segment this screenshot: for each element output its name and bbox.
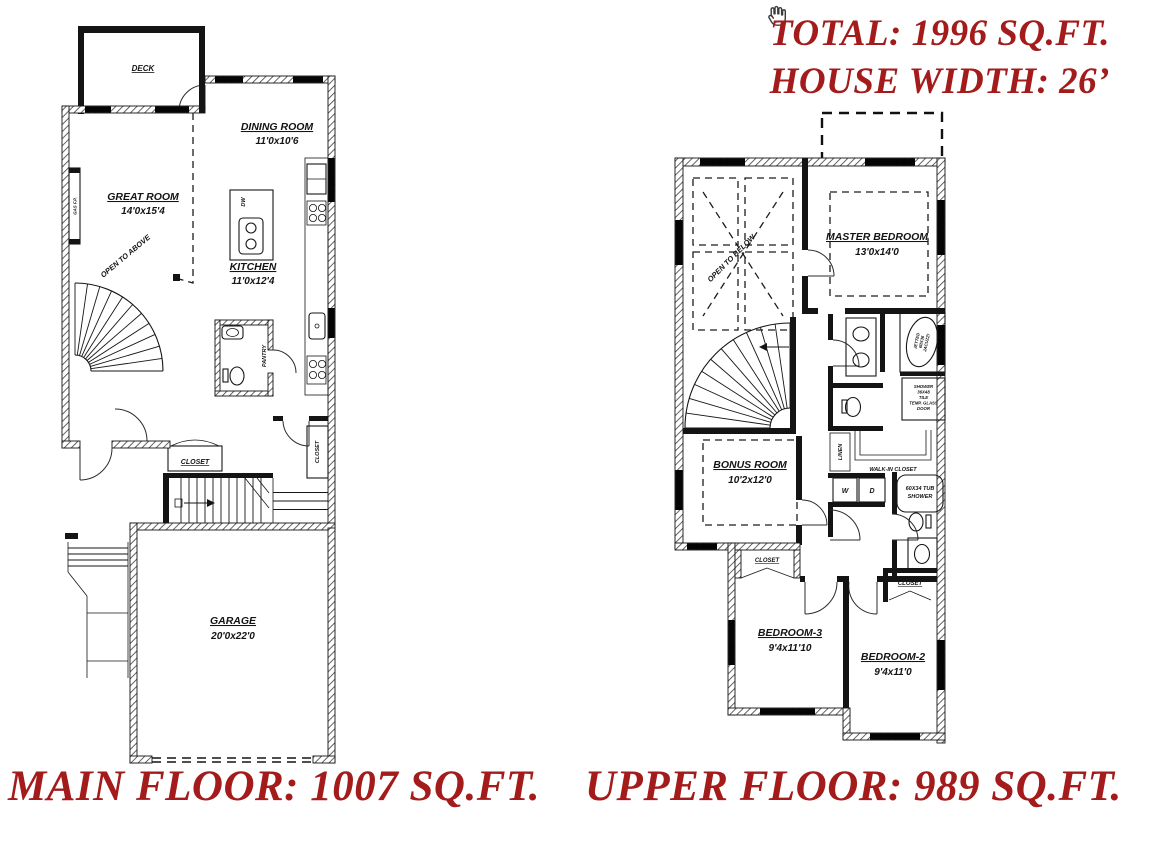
master-wall-lower: [802, 276, 808, 314]
master-bedroom-dims: 13'0x14'0: [855, 247, 899, 258]
pantry-label: PANTRY: [262, 344, 268, 367]
deck: DECK: [78, 26, 205, 114]
tub-shower: 60X34 TUB SHOWER: [897, 475, 943, 512]
tub-shower-label-2: SHOWER: [908, 494, 933, 500]
kitchen-counter: [305, 158, 328, 395]
total-sqft-label: TOTAL: 1996 SQ.FT.: [700, 12, 1110, 55]
dining-room-label: DINING ROOM: [241, 121, 314, 133]
master-ensuite: JETTED 60X36 JACUZZI SHOWER 36X48 TILE T…: [808, 308, 945, 502]
bedroom-2: BEDROOM-2 9'4x11'0: [861, 651, 925, 678]
kitchen: DW KITCHEN 11'0x12'4: [230, 158, 328, 395]
shower-label-3: TILE: [919, 395, 928, 400]
open-to-below-area: OPEN TO BELOW: [693, 178, 793, 330]
master-wall: [802, 158, 808, 250]
bedroom3-label: BEDROOM-3: [758, 627, 822, 639]
fireplace-label: GAS F.P.: [73, 197, 78, 214]
shower-label-1: SHOWER: [914, 384, 934, 389]
stove: [307, 356, 326, 384]
bedroom2-label: BEDROOM-2: [861, 651, 925, 663]
garage-label: GARAGE: [210, 615, 257, 627]
master-bedroom-label: MASTER BEDROOM: [826, 231, 928, 243]
upper-floor-plan: OPEN TO BELOW MASTER BEDROOM 13'0x14'0: [665, 100, 955, 765]
bonus-room-dims: 10'2x12'0: [728, 475, 772, 486]
toilet: [223, 367, 244, 385]
great-room-label: GREAT ROOM: [107, 191, 179, 203]
kitchen-dims: 11'0x12'4: [232, 276, 275, 287]
washer-label: W: [842, 488, 850, 495]
kitchen-island: DW: [230, 190, 273, 260]
kitchen-label: KITCHEN: [230, 261, 277, 273]
dishwasher-label: DW: [241, 197, 247, 207]
dryer-label: D: [869, 488, 874, 495]
side-closet-label: CLOSET: [315, 440, 321, 463]
linen-label: LINEN: [838, 443, 844, 461]
bonus-room-label: BONUS ROOM: [713, 459, 787, 471]
house-width-label: HOUSE WIDTH: 26’: [700, 60, 1110, 103]
powder-room: PANTRY: [215, 320, 296, 396]
linen-closet: LINEN: [830, 433, 850, 471]
upper-floor-sqft-label: UPPER FLOOR: 989 SQ.FT.: [585, 762, 1145, 811]
main-staircase: [175, 478, 328, 525]
bath-toilet: [909, 513, 931, 531]
shower-label-5: DOOR: [917, 406, 931, 411]
main-floor-sqft-label: MAIN FLOOR: 1007 SQ.FT.: [8, 762, 568, 811]
front-porch: [65, 533, 128, 678]
entry-closet-label: CLOSET: [181, 459, 210, 466]
fireplace: GAS F.P.: [69, 168, 80, 244]
open-to-above-label: OPEN TO ABOVE: [99, 232, 153, 279]
mud-hall: CLOSET: [273, 416, 328, 478]
shower-label-2: 36X48: [917, 390, 930, 395]
jacuzzi-label-3: JACUZZI: [922, 333, 931, 353]
bedroom3-closet: CLOSET: [735, 543, 800, 578]
cooktop: [307, 201, 326, 225]
main-floor-plan: DECK GAS F.P. GREAT ROOM 14'0x15'4 OPEN …: [55, 18, 355, 768]
laundry: W D: [828, 473, 885, 502]
closet-bed3-label: CLOSET: [755, 558, 781, 564]
bedroom-3: BEDROOM-3 9'4x11'10: [758, 627, 822, 654]
main-bath: 60X34 TUB SHOWER: [892, 472, 943, 578]
upper-curved-staircase: [683, 317, 796, 434]
master-bedroom: MASTER BEDROOM 13'0x14'0: [826, 192, 928, 296]
great-room-dims: 14'0x15'4: [121, 206, 165, 217]
bedroom3-dims: 9'4x11'10: [769, 643, 812, 654]
bedroom-hall: [800, 576, 937, 708]
curved-staircase: [75, 283, 163, 371]
great-room: GAS F.P. GREAT ROOM 14'0x15'4 OPEN TO AB…: [62, 106, 205, 448]
bonus-room: BONUS ROOM 10'2x12'0: [703, 436, 827, 545]
water-closet: [828, 383, 883, 431]
bath-sink: [908, 538, 937, 570]
roof-outline: [822, 113, 942, 162]
shower-label-4: TEMP. GLASS: [909, 401, 938, 406]
entry: CLOSET: [62, 409, 328, 530]
bedroom2-dims: 9'4x11'0: [874, 667, 912, 678]
tub-shower-label-1: 60X34 TUB: [906, 486, 935, 492]
deck-label: DECK: [132, 64, 156, 73]
dining-room-dims: 11'0x10'6: [256, 136, 299, 147]
bedroom2-closet: CLOSET: [883, 568, 937, 602]
garage-dims: 20'0x22'0: [210, 631, 255, 642]
upper-hall: [828, 502, 885, 540]
entry-closet: CLOSET: [168, 440, 222, 471]
garage: GARAGE 20'0x22'0: [130, 523, 335, 763]
walk-in-closet: WALK-IN CLOSET: [855, 430, 931, 473]
open-to-below-label: OPEN TO BELOW: [706, 232, 758, 284]
